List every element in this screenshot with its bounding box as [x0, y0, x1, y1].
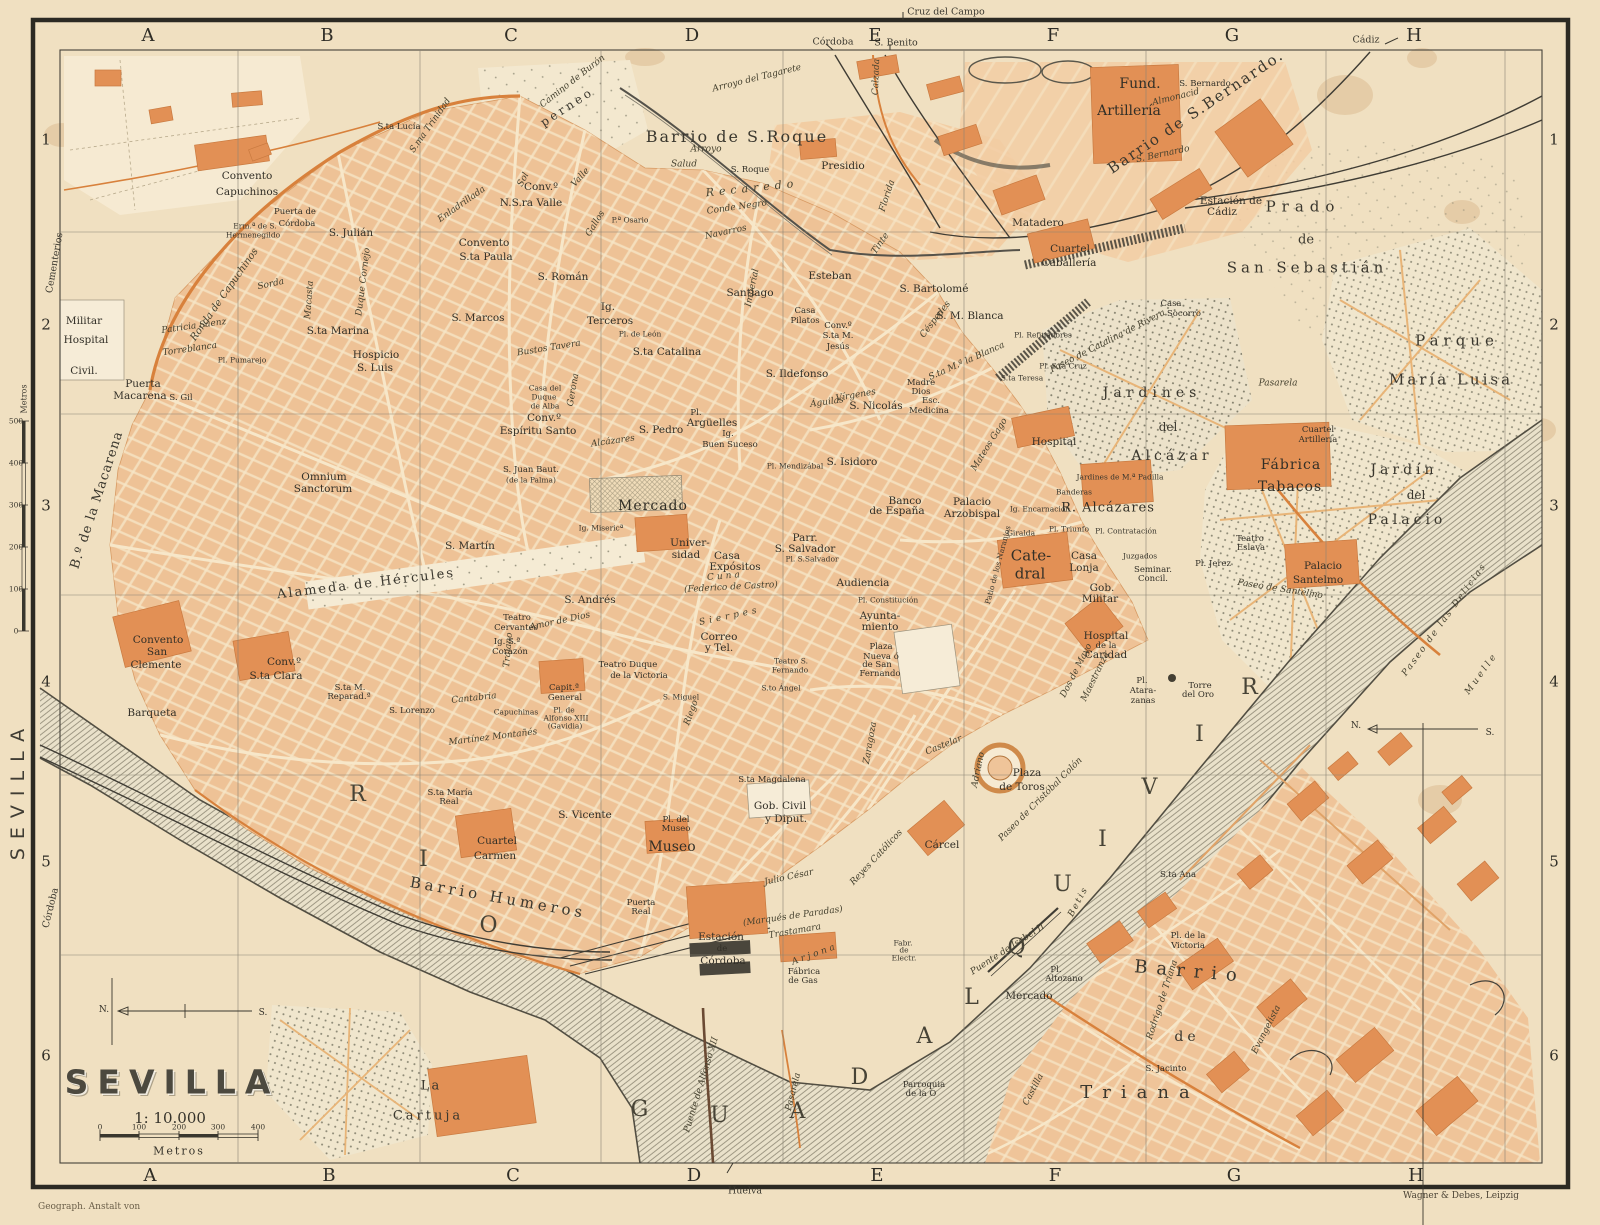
map-label: Argüelles	[687, 418, 738, 429]
map-label: Juzgados	[1123, 552, 1157, 560]
map-label: de	[1174, 1030, 1199, 1044]
map-label: S. Vicente	[558, 810, 612, 821]
grid-col-C: C	[504, 27, 518, 45]
map-label: (de la Palma)	[506, 476, 556, 484]
map-label: U	[1053, 874, 1073, 896]
map-label: S.ta Catalina	[633, 347, 702, 358]
map-label: Victoria	[1171, 942, 1205, 951]
map-label: Tabacos	[1258, 480, 1322, 494]
map-label: Cuartel	[1050, 244, 1090, 255]
map-label: de España	[869, 506, 924, 517]
map-label: del Oro	[1182, 691, 1214, 700]
map-label: S.ta Ana	[1160, 871, 1196, 880]
map-label: Univer-	[670, 538, 710, 549]
page-title: SEVILLA	[65, 1063, 280, 1102]
map-label: Plaza	[1013, 768, 1041, 779]
map-label: María Luisa	[1389, 373, 1513, 388]
map-label: Cádiz	[1207, 207, 1237, 218]
grid-col-C: C	[506, 1167, 520, 1185]
map-label: Ayunta-	[860, 611, 901, 622]
map-label: Jardín	[1370, 463, 1437, 477]
map-label: V	[1142, 777, 1159, 799]
map-label: Medicina	[909, 407, 949, 416]
map-sheet: Cruz del CampoCórdobaS. BenitoCádizHuelv…	[0, 0, 1600, 1225]
map-label: S. Juan Baut.	[503, 466, 559, 475]
map-label: Cuartel	[477, 836, 517, 847]
scale-tick: 300	[211, 1123, 225, 1131]
map-label: Puerta de	[274, 208, 316, 217]
map-label: S.ta Lucía	[377, 123, 420, 132]
map-label: Arroyo	[690, 146, 721, 155]
map-label: S. Gil	[169, 394, 192, 403]
map-label: Pl. Jerez	[1195, 560, 1231, 569]
map-label: Pl. Pumarejo	[218, 356, 267, 364]
map-label: Parr.	[792, 533, 817, 544]
map-label: Electr.	[892, 954, 917, 962]
map-label: Huelva	[728, 1186, 762, 1196]
map-label: Estación	[698, 932, 744, 943]
map-label: Esc.	[922, 397, 940, 406]
grid-row-6: 6	[1549, 1049, 1559, 1064]
map-label: y Tel.	[705, 643, 733, 654]
map-label: La	[421, 1080, 441, 1093]
map-label: Cruz del Campo	[907, 7, 984, 17]
torre-del-oro-mark	[1168, 674, 1176, 682]
map-label: S.ta Marina	[307, 326, 369, 337]
map-label: Teatro	[503, 614, 531, 623]
map-label: Fernando	[859, 670, 900, 679]
map-label: S. Jacinto	[1146, 1065, 1187, 1074]
map-label: Barqueta	[127, 708, 176, 719]
map-label: (Gavidia)	[548, 722, 583, 730]
grid-col-A: A	[142, 27, 155, 45]
map-label: San	[147, 647, 167, 658]
map-label: I	[1195, 724, 1205, 746]
map-label: Alcázar	[1131, 449, 1212, 463]
map-label: S. Andrés	[564, 595, 615, 606]
map-label: de Toros	[999, 782, 1045, 793]
map-label: S. Pedro	[639, 425, 683, 436]
map-label: S. Julián	[329, 228, 373, 239]
map-label: Pl. Constitución	[858, 596, 918, 604]
compass-label: S.	[259, 1008, 268, 1018]
map-label: Triana	[1080, 1084, 1199, 1102]
map-label: de Gas	[788, 977, 817, 986]
grid-col-E: E	[868, 27, 881, 45]
map-label: S. Marcos	[451, 313, 504, 324]
map-label: Civil.	[70, 366, 97, 377]
building-block	[894, 624, 960, 693]
left-scale-tick: 500	[9, 417, 23, 425]
map-label: Duque	[532, 393, 557, 401]
map-label: Calzada	[872, 59, 882, 96]
map-label: S.ta Clara	[250, 671, 303, 682]
map-label: Altozano	[1045, 975, 1083, 984]
scale-tick: 0	[98, 1123, 103, 1131]
map-label: Palacio	[953, 497, 991, 508]
map-label: Córdoba	[700, 956, 745, 967]
map-label: Casa	[1160, 300, 1181, 309]
map-label: S. Roque	[731, 166, 769, 175]
map-label: Barrio de S.Roque	[646, 129, 828, 145]
map-label: Hospital	[1032, 437, 1077, 448]
map-label: Concil.	[1138, 575, 1168, 584]
map-label: O	[479, 915, 498, 937]
compass-label: N.	[1351, 721, 1361, 731]
grid-col-B: B	[322, 1167, 335, 1185]
map-label: Jesús	[827, 343, 850, 352]
map-label: Esteban	[808, 271, 851, 282]
map-label: Pl. Contratación	[1095, 527, 1157, 535]
compass-label: N.	[99, 1005, 109, 1015]
map-label: Hermenegildo	[226, 231, 280, 239]
map-label: Banderas	[1056, 488, 1092, 496]
map-label: S. Ildefonso	[766, 369, 829, 380]
map-label: Pl. S.Salvador	[785, 555, 838, 563]
map-label: de Alba	[531, 402, 560, 410]
map-label: S. Nicolás	[849, 401, 902, 412]
map-label: Córdoba	[279, 220, 316, 229]
map-label: Militar	[1082, 594, 1118, 605]
grid-row-5: 5	[41, 855, 51, 870]
map-label: Fernando	[772, 666, 808, 674]
map-label: Espíritu Santo	[500, 426, 577, 437]
map-label: Cartuja	[393, 1110, 463, 1123]
map-label: Macarena	[113, 391, 166, 402]
map-label: Convento	[222, 171, 273, 182]
map-label: Palacio	[1304, 561, 1342, 572]
grid-col-D: D	[687, 1167, 701, 1185]
map-label: Matadero	[1012, 218, 1064, 229]
map-label: Eslava	[1237, 544, 1265, 553]
map-label: Omnium	[301, 472, 346, 483]
map-label: Cuartel	[1302, 426, 1334, 435]
map-label: N.S.ra Valle	[500, 198, 562, 209]
map-label: Pl. Triunfo	[1049, 525, 1089, 533]
grid-row-1: 1	[1549, 133, 1559, 148]
grid-col-B: B	[320, 27, 333, 45]
map-label: Jardines de M.ª Padilla	[1076, 473, 1163, 481]
map-label: Estación de	[1200, 196, 1262, 207]
map-label: Museo	[648, 840, 695, 854]
map-label: Pl. Refinadores	[1014, 331, 1072, 339]
map-label: Gob. Civil	[754, 801, 806, 812]
map-label: Real	[631, 908, 650, 917]
map-label: Caballería	[1042, 258, 1097, 269]
grid-col-H: H	[1406, 27, 1422, 45]
building-block	[428, 1055, 536, 1136]
scale-tick: 400	[251, 1123, 265, 1131]
map-label: Cádiz	[1352, 35, 1379, 45]
map-label: Ig.	[722, 430, 734, 439]
scale-ratio: 1: 10.000	[134, 1109, 206, 1127]
map-label: de la Victoria	[610, 672, 668, 681]
map-label: Terceros	[587, 316, 633, 327]
map-canvas	[0, 0, 1600, 1225]
grid-col-G: G	[1227, 1167, 1241, 1185]
grid-row-3: 3	[41, 499, 51, 514]
map-label: Casa	[1071, 551, 1097, 562]
map-label: Atara-	[1130, 687, 1156, 696]
map-label: Ig. Misericª	[579, 524, 624, 532]
map-label: de la O	[906, 1090, 937, 1099]
left-scale-tick: 0	[14, 627, 19, 635]
grid-col-A: A	[144, 1167, 157, 1185]
engraver-imprint: Geograph. Anstalt von	[38, 1202, 140, 1212]
map-label: L	[964, 987, 980, 1009]
grid-row-1: 1	[41, 133, 51, 148]
map-label: Mercado	[1005, 991, 1052, 1002]
map-label: S.to Ángel	[761, 684, 800, 692]
scale-unit-label: Metros	[153, 1145, 205, 1158]
map-label: Córdoba	[812, 37, 853, 47]
map-label: Convento	[459, 238, 510, 249]
left-scale-tick: 300	[9, 501, 23, 509]
map-label: miento	[862, 622, 899, 633]
map-label: S. Bernardo	[1179, 80, 1230, 89]
map-label: S. Salvador	[775, 544, 836, 555]
map-label: Santelmo	[1293, 575, 1343, 586]
grid-row-2: 2	[41, 318, 51, 333]
map-label: Pl. de la	[1171, 932, 1206, 941]
map-label: R	[1241, 677, 1259, 699]
left-scale-tick: 400	[9, 459, 23, 467]
map-label: I	[419, 849, 429, 871]
map-label: de	[1298, 234, 1314, 247]
left-scale-unit-label: Metros	[20, 385, 29, 414]
map-label: Buen Suceso	[702, 441, 758, 450]
grid-col-G: G	[1225, 27, 1239, 45]
map-label: zanas	[1131, 697, 1155, 706]
map-label: S. Lorenzo	[389, 707, 435, 716]
map-label: Militar	[66, 316, 102, 327]
map-label: Gob.	[1090, 583, 1115, 594]
map-label: Sanctorum	[294, 484, 352, 495]
map-label: Conv.º	[524, 182, 558, 193]
map-label: Audiencia	[837, 578, 890, 589]
map-label: Capuchinos	[216, 187, 278, 198]
map-label: Real	[439, 798, 458, 807]
map-label: Casa del	[529, 384, 562, 392]
map-label: Pilatos	[790, 317, 819, 326]
map-label: Convento	[133, 635, 184, 646]
map-label: Artillería	[1299, 436, 1338, 445]
left-scale-tick: 200	[9, 543, 23, 551]
map-label: Mercado	[618, 499, 688, 513]
map-label: Pasarela	[1259, 380, 1298, 389]
map-label: I	[1098, 829, 1108, 851]
left-scale-tick: 100	[9, 585, 23, 593]
map-label: Fábrica	[1261, 458, 1321, 472]
map-label: San Sebastián	[1227, 261, 1387, 276]
building-block	[231, 91, 262, 108]
grid-row-2: 2	[1549, 318, 1559, 333]
map-label: Plaza	[869, 643, 892, 652]
map-label: Teatro Duque	[599, 661, 658, 670]
map-label: Conv.º	[267, 657, 301, 668]
grid-col-H: H	[1408, 1167, 1424, 1185]
grid-row-5: 5	[1549, 855, 1559, 870]
map-label: Jardines	[1103, 386, 1202, 400]
map-label: Casa	[794, 307, 815, 316]
map-label: Conv.º	[527, 413, 561, 424]
map-label: S. Román	[538, 272, 589, 283]
map-label: Capuchinas	[494, 708, 538, 716]
map-label: Presidio	[821, 161, 864, 172]
map-label: de	[717, 945, 727, 954]
map-label: Artillería	[1097, 104, 1161, 118]
building-block	[95, 70, 121, 86]
map-label: Socorro	[1167, 310, 1201, 319]
map-label: Puerta	[125, 379, 161, 390]
map-label: Reparad.ª	[327, 693, 370, 702]
grid-row-6: 6	[41, 1049, 51, 1064]
map-label: Hospital	[1084, 631, 1129, 642]
map-label: S. Bartolomé	[900, 284, 969, 295]
map-label: S.ta Magdalena	[738, 776, 805, 785]
map-label: dral	[1015, 567, 1046, 582]
map-label: Arzobispal	[944, 509, 1000, 520]
map-label: S. Isidoro	[827, 457, 878, 468]
map-label: Cárcel	[925, 840, 960, 851]
side-title: SEVILLA	[7, 720, 29, 860]
map-label: Correo	[701, 632, 738, 643]
grid-row-4: 4	[41, 675, 51, 690]
map-label: R	[349, 784, 367, 806]
map-label: del	[1159, 421, 1178, 433]
map-label: Pl. de León	[619, 330, 662, 338]
grid-col-D: D	[685, 27, 699, 45]
map-label: Lonja	[1069, 563, 1099, 574]
map-label: Erm.ª de S.	[233, 222, 276, 230]
map-label: Prado	[1266, 200, 1341, 215]
map-label: Carmen	[474, 851, 516, 862]
map-label: Ig.	[601, 302, 615, 313]
building-block	[1081, 460, 1154, 507]
map-label: Parque	[1415, 334, 1499, 349]
map-label: y Diput.	[765, 814, 807, 825]
publisher-imprint: Wagner & Debes, Leipzig	[1403, 1191, 1519, 1201]
map-label: Museo	[662, 825, 691, 834]
map-label: G	[631, 1099, 650, 1121]
map-label: Pl.	[1136, 677, 1147, 686]
map-label: R. Alcázares	[1061, 502, 1155, 515]
map-label: Hospital	[64, 335, 109, 346]
map-label: Salud	[671, 161, 697, 170]
map-label: U	[710, 1105, 730, 1127]
map-label: Conv.º	[824, 322, 852, 331]
map-label: Fund.	[1119, 77, 1160, 91]
map-label: del	[1407, 489, 1426, 501]
map-label: S.ta Paula	[459, 252, 512, 263]
grid-col-F: F	[1047, 27, 1060, 45]
grid-row-4: 4	[1549, 675, 1559, 690]
map-label: Capit.ª	[549, 684, 579, 693]
map-label: Clemente	[131, 660, 182, 671]
grid-col-E: E	[870, 1167, 883, 1185]
map-label: Cate-	[1011, 549, 1051, 564]
map-label: P.ª Osario	[612, 216, 649, 224]
compass-label: S.	[1486, 728, 1495, 738]
map-label: D	[851, 1067, 870, 1089]
map-label: S.ta M.	[823, 332, 854, 341]
map-label: Teatro S.	[774, 657, 808, 665]
map-label: S.ta Teresa	[1001, 374, 1043, 382]
map-label: Hospicio	[353, 350, 400, 361]
grid-row-3: 3	[1549, 499, 1559, 514]
map-label: S. Luis	[357, 363, 393, 374]
map-label: Casa	[714, 551, 740, 562]
map-label: Palacio	[1368, 513, 1447, 527]
map-label: S. Martín	[445, 541, 495, 552]
map-label: A	[917, 1026, 934, 1048]
map-label: General	[548, 694, 582, 703]
map-label: sidad	[672, 550, 700, 561]
map-label: Pl. Mendizábal	[767, 462, 823, 470]
grid-col-F: F	[1049, 1167, 1062, 1185]
